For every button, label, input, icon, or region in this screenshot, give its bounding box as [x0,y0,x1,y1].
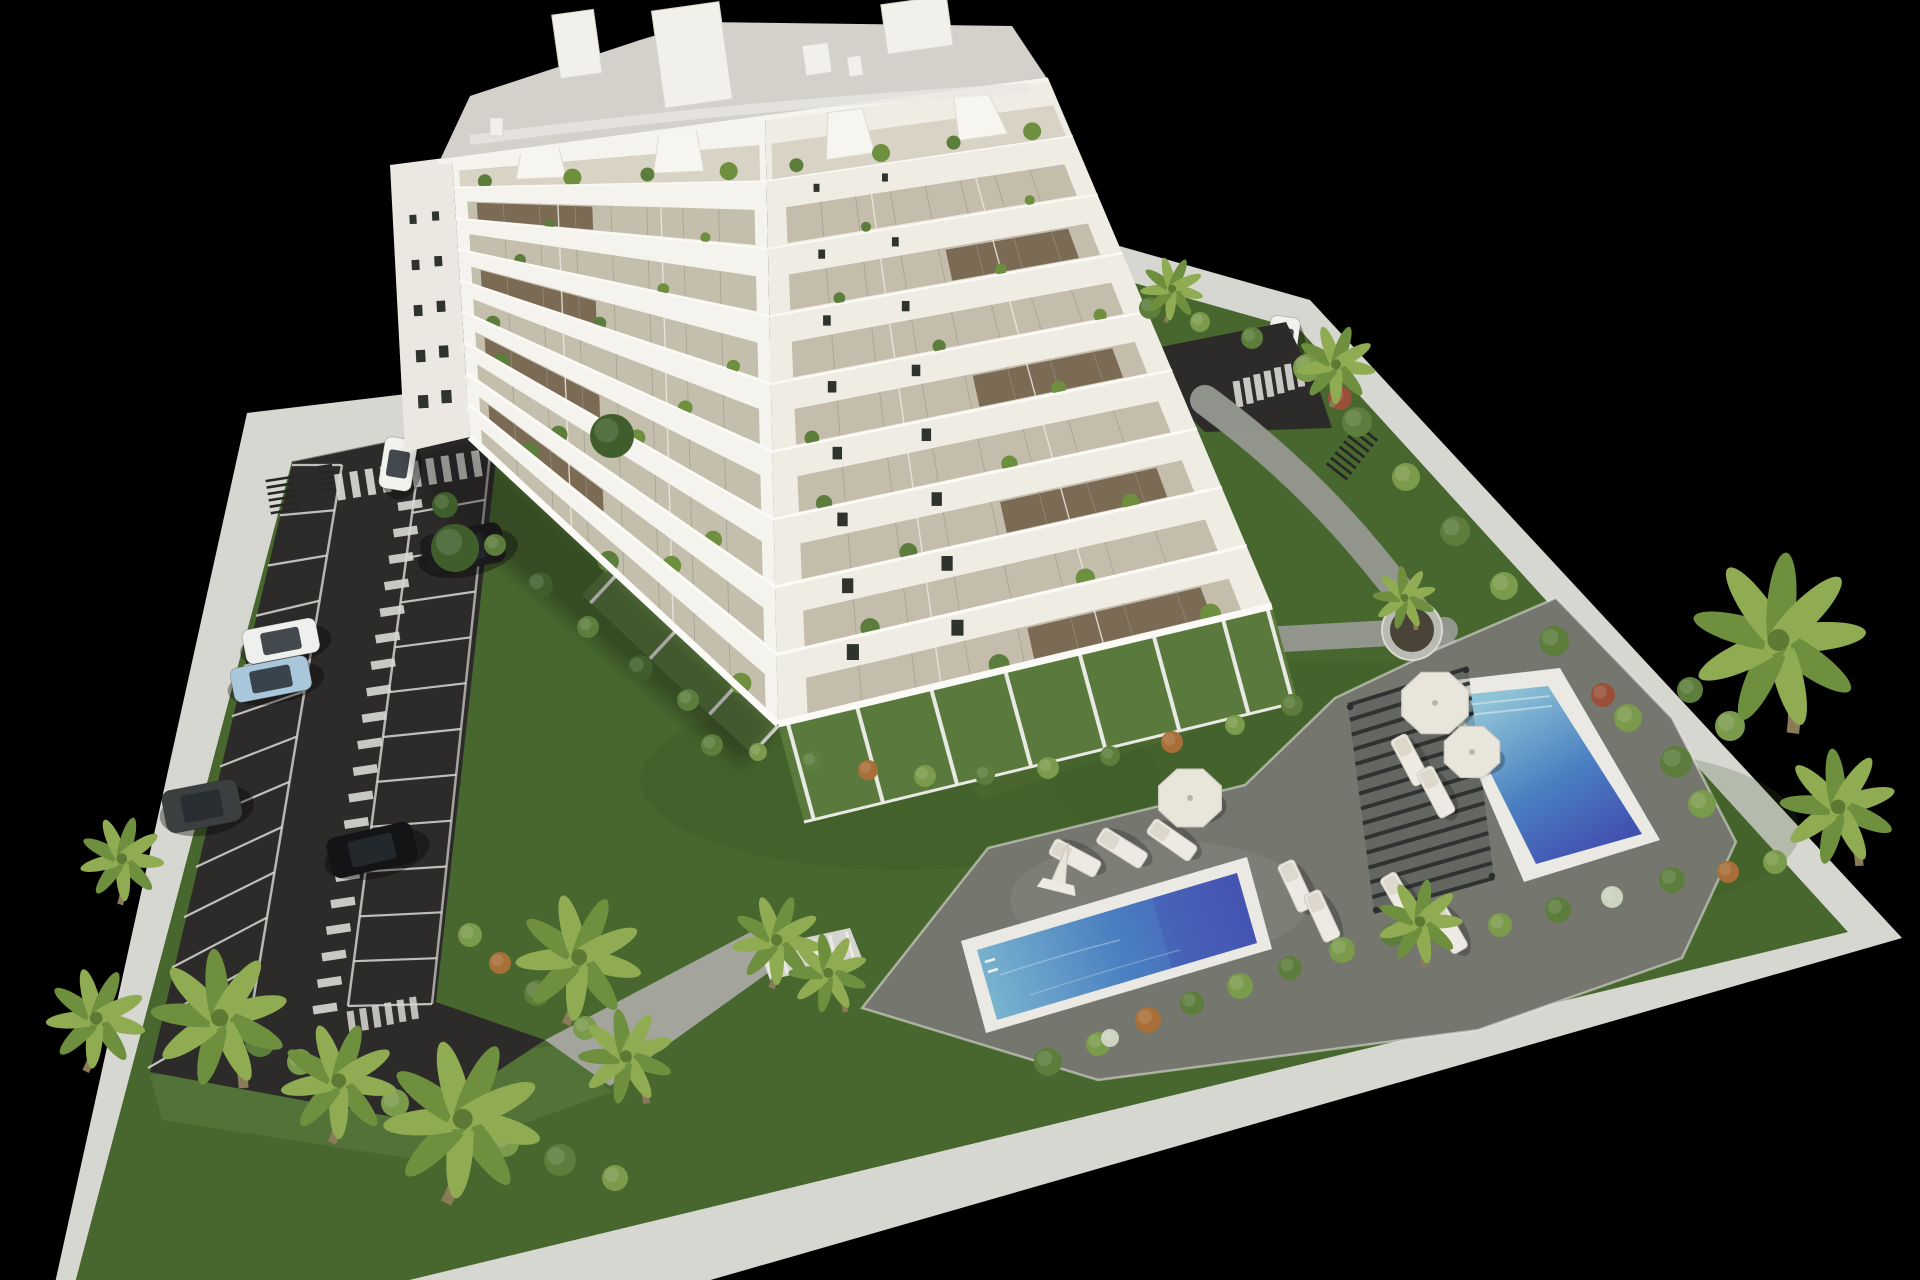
bush [1225,715,1245,735]
bush [1034,1048,1062,1076]
bush [858,760,878,780]
walkway-stripe [313,1007,337,1011]
walkway-stripe [344,821,368,825]
crosswalk-stripe [353,471,357,497]
terrace-plant [947,136,961,150]
bush [1688,790,1716,818]
balcony-divider [664,317,665,350]
bush [701,734,723,756]
terrace-plant [640,167,654,181]
balcony-divider [661,206,662,239]
bush [1677,677,1703,703]
render-canvas [0,0,1920,1280]
crosswalk-stripe [400,1000,403,1022]
walkway-stripe [358,742,382,746]
crosswalk-stripe [1246,378,1250,404]
walkway-stripe [318,980,342,984]
crosswalk-stripe [1288,364,1292,390]
walkway-stripe [326,927,350,931]
bush [1241,327,1263,349]
bush [1763,850,1787,874]
bush [602,1165,628,1191]
walkway-stripe [322,954,346,958]
window [902,301,910,311]
bush [749,743,767,761]
roof-access-box [881,0,953,54]
bush [1614,704,1642,732]
window [409,215,416,225]
walkway-stripe [398,503,422,507]
bush [1490,572,1518,600]
bush [458,923,482,947]
bush [1037,757,1059,779]
walkway-stripe [380,609,404,613]
walkway-stripe [331,901,355,905]
window [882,173,888,181]
walkway-stripe [371,662,395,666]
palm-tree [1684,544,1874,742]
walkway-stripe [349,795,373,799]
window [833,447,842,460]
bush [1392,463,1420,491]
crosswalk-stripe [338,474,342,500]
window [414,305,423,317]
bush [1717,861,1739,883]
crosswalk-stripe [388,1003,391,1025]
bush [1488,913,1512,937]
bush [590,414,634,458]
penthouse-volume [654,129,704,173]
balcony-plant [700,232,710,242]
roof-access-box [652,2,733,109]
bush [1342,407,1372,437]
walkway-stripe [389,556,413,560]
walkway-stripe [376,636,400,640]
window [828,381,837,392]
window [814,184,820,192]
bush [1281,694,1303,716]
window [922,428,931,441]
window [416,350,426,363]
crosswalk-stripe [1267,371,1271,397]
bush [677,689,699,711]
window [432,211,439,221]
bush [1278,956,1302,980]
window [932,492,942,506]
walkway-stripe [353,768,377,772]
roof-chimney [490,118,503,136]
crosswalk-stripe [1236,381,1240,407]
window [818,250,825,259]
crosswalk-stripe [1257,374,1261,400]
window [439,345,449,358]
window [912,365,921,376]
walkway-stripe [385,583,409,587]
bush [544,1144,576,1176]
scene-svg [0,0,1920,1280]
bush [1539,626,1569,656]
window [951,620,963,636]
bush [1329,937,1355,963]
walkway-stripe [362,715,386,719]
crosswalk-stripe [375,1005,378,1027]
bush [1601,886,1623,908]
window [941,556,952,571]
window [441,390,452,404]
balcony-plant [861,222,871,232]
bush [1135,1007,1161,1033]
bush [484,534,506,556]
terrace-plant [872,144,890,162]
bush [1161,731,1183,753]
window [892,237,899,246]
bush [432,492,458,518]
terrace-plant [789,158,803,172]
window [418,395,429,409]
walkway-stripe [367,689,391,693]
balcony-divider [667,427,668,460]
window [436,301,445,313]
window [842,578,853,593]
bush [1190,312,1210,332]
terrace-plant [1023,122,1041,140]
balcony-plant [1025,195,1035,205]
bush [1227,973,1253,999]
bush [975,765,995,785]
bush [1180,991,1204,1015]
crosswalk-stripe [1277,367,1281,393]
bush [1101,1029,1119,1047]
bush [1100,746,1120,766]
balcony-divider [669,483,670,516]
bush [627,655,653,681]
window [411,260,419,271]
window [434,256,442,267]
window [823,315,831,325]
balcony-divider [666,372,667,405]
bush [1440,516,1470,546]
crosswalk-stripe [368,469,372,495]
terrace-plant [563,169,581,187]
window [837,513,847,527]
bush [1545,897,1571,923]
terrace-plant [720,162,738,180]
bush [801,751,823,773]
bush [914,765,936,787]
roof-access-box [802,42,832,75]
bush [577,616,599,638]
bush [1660,746,1692,778]
window [847,644,859,660]
roof-access-box [552,9,602,78]
bush [527,572,553,598]
walkway-stripe [394,530,418,534]
crosswalk-stripe [413,997,416,1019]
bush [1659,867,1685,893]
bush [431,524,479,572]
bush [1591,683,1615,707]
crosswalk-stripe [363,1008,366,1030]
bush [489,952,511,974]
roof-chimney [847,55,864,77]
